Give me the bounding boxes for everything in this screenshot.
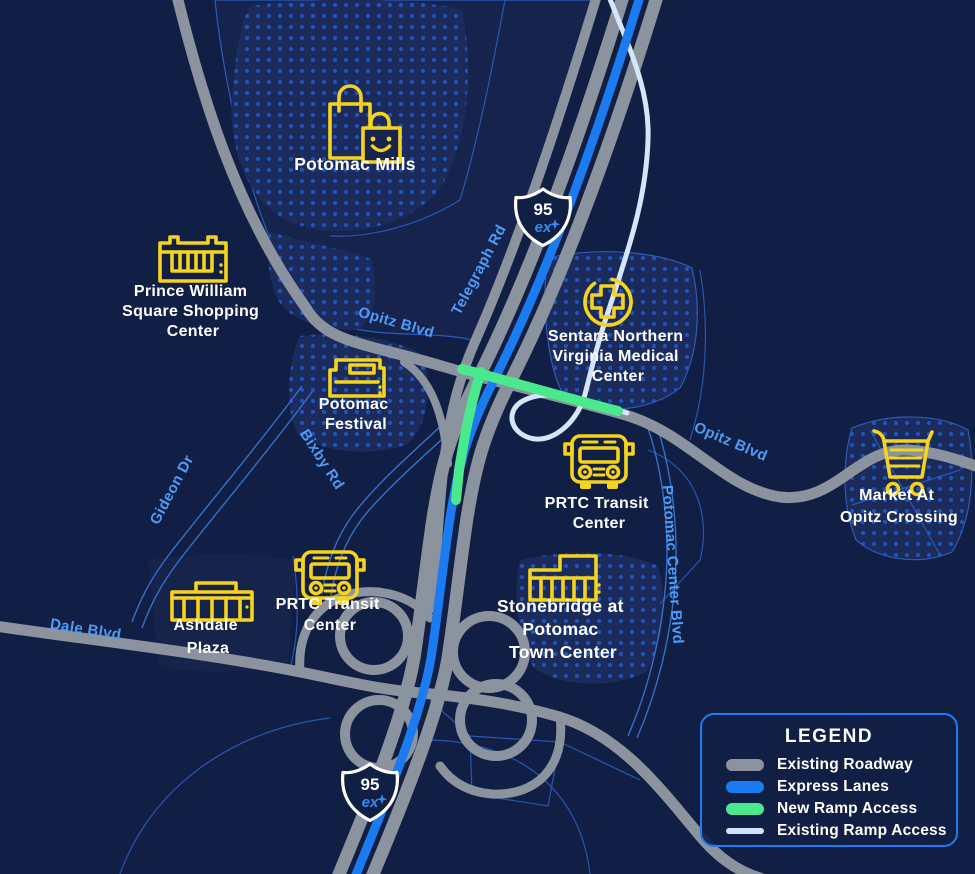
express-lanes-swatch bbox=[726, 781, 764, 793]
legend-item-label: Existing Roadway bbox=[777, 756, 913, 774]
existing-roadway-swatch bbox=[726, 759, 764, 771]
shield-route-number: 95 bbox=[361, 775, 380, 794]
new-ramp-access-swatch bbox=[726, 803, 764, 815]
legend-box: LEGEND Existing Roadway Express Lanes Ne… bbox=[700, 713, 958, 847]
legend-item-label: New Ramp Access bbox=[777, 800, 917, 818]
legend-item-label: Express Lanes bbox=[777, 778, 889, 796]
landmark-label: Potomac Mills bbox=[294, 154, 416, 174]
shield-express-brand: ex bbox=[535, 219, 552, 236]
map-canvas: 95 ex 95 ex Telegraph Rd Opitz Blvd Opit… bbox=[0, 0, 975, 874]
legend-item-existing-ramp-access: Existing Ramp Access bbox=[702, 820, 956, 842]
legend-item-express-lanes: Express Lanes bbox=[702, 776, 956, 798]
legend-item-new-ramp-access: New Ramp Access bbox=[702, 798, 956, 820]
legend-item-label: Existing Ramp Access bbox=[777, 822, 947, 840]
shield-express-brand: ex bbox=[362, 794, 379, 811]
legend-title: LEGEND bbox=[702, 726, 956, 748]
existing-ramp-access-swatch bbox=[726, 828, 764, 834]
legend-item-existing-roadway: Existing Roadway bbox=[702, 754, 956, 776]
shield-route-number: 95 bbox=[534, 200, 553, 219]
